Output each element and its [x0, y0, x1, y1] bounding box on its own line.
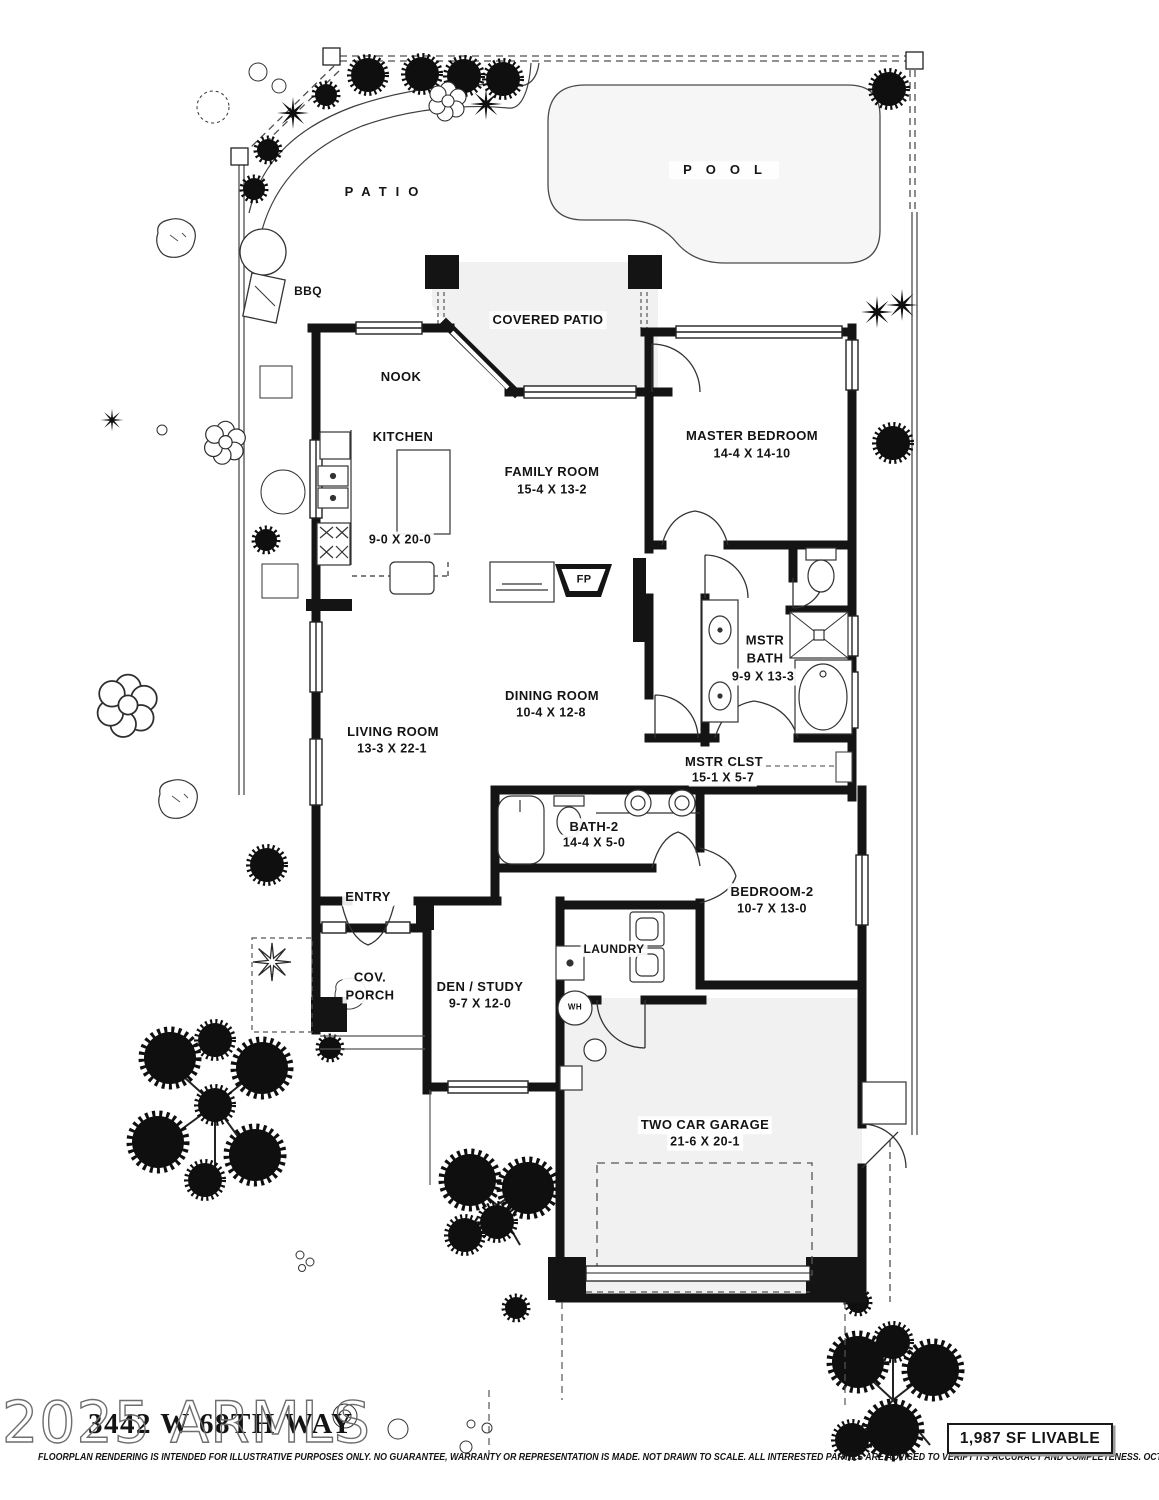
master-closet-label: MSTR CLST	[682, 753, 766, 771]
master-closet-dims: 15-1 X 5-7	[689, 770, 757, 787]
softener	[584, 1039, 606, 1061]
dining-room-label: DINING ROOM	[502, 687, 602, 705]
utility-box	[560, 1066, 582, 1090]
palm-icon	[886, 289, 918, 321]
kitchen-island	[397, 450, 450, 534]
kitchen-fixtures	[317, 430, 450, 594]
bedroom2-label: BEDROOM-2	[727, 883, 816, 901]
bath2-dims: 14-4 X 5-0	[560, 835, 628, 852]
toilet-bowl	[808, 560, 834, 592]
bbq-grill	[240, 229, 286, 323]
family-room-label: FAMILY ROOM	[502, 463, 603, 481]
planter-box	[260, 366, 292, 398]
tree-icon	[130, 1022, 290, 1198]
bush-icon	[318, 1036, 342, 1060]
patio-table	[261, 470, 305, 514]
den-study-label: DEN / STUDY	[434, 978, 527, 996]
living-room-label: LIVING ROOM	[344, 723, 442, 741]
cabinet	[390, 562, 434, 594]
stone-icon	[157, 425, 167, 435]
armls-watermark: 2025 ARMLS	[2, 1390, 371, 1456]
laundry-label: LAUNDRY	[580, 941, 647, 957]
bush-icon	[256, 138, 280, 162]
bedroom2-dims: 10-7 X 13-0	[734, 901, 810, 918]
master-double-door	[662, 511, 728, 545]
tub	[498, 796, 544, 864]
stone-icon	[272, 79, 286, 93]
bush-icon	[249, 847, 285, 883]
bush-icon	[875, 425, 911, 461]
master-bath-dims: 9-9 X 13-3	[729, 669, 797, 686]
kitchen-label: KITCHEN	[370, 428, 437, 446]
bbq-label: BBQ	[291, 283, 325, 299]
palm-icon	[861, 296, 893, 328]
floorplan-page: POOL PATIO COVERED PATIO BBQ NOOK KITCHE…	[0, 0, 1159, 1500]
toilet-tank	[554, 796, 584, 806]
floorplan-drawing	[0, 0, 1159, 1500]
garage-label: TWO CAR GARAGE	[638, 1116, 772, 1134]
stone-icon	[197, 91, 229, 123]
fridge	[320, 432, 350, 459]
living-room-dims: 13-3 X 22-1	[354, 741, 430, 758]
covered-patio-label: COVERED PATIO	[490, 311, 607, 329]
tree-icon	[830, 1324, 961, 1458]
family-room-dims: 15-4 X 13-2	[514, 482, 590, 499]
kitchen-dims: 9-0 X 20-0	[366, 532, 434, 549]
flower-cluster	[98, 675, 157, 737]
bush-icon	[314, 83, 338, 107]
toilet-tank	[806, 548, 836, 560]
cov-porch-label: COV. PORCH	[343, 968, 398, 1003]
den-study-dims: 9-7 X 12-0	[446, 996, 514, 1013]
stone-icon	[249, 63, 267, 81]
palm-icon	[470, 88, 502, 120]
dining-room-dims: 10-4 X 12-8	[513, 705, 589, 722]
palm-icon	[277, 97, 309, 129]
tree-icon	[485, 61, 521, 97]
tree-icon	[442, 1152, 556, 1253]
water-heater-label: WH	[567, 1003, 583, 1014]
pool-label: POOL	[669, 161, 779, 179]
bath2-label: BATH-2	[566, 818, 621, 836]
bush-icon	[504, 1296, 528, 1320]
planter-box	[262, 564, 298, 598]
bush-icon	[242, 177, 266, 201]
master-bedroom-dims: 14-4 X 14-10	[710, 446, 793, 463]
patio-door	[652, 344, 700, 392]
nook-label: NOOK	[378, 368, 425, 386]
fireplace-label: FP	[574, 573, 595, 588]
rock-icon	[159, 780, 198, 819]
palm-icon	[101, 409, 123, 431]
master-bath-label: MSTR BATH	[743, 631, 787, 666]
master-bath-door	[705, 555, 748, 598]
hall-door	[655, 695, 698, 738]
livable-area-badge: 1,987 SF LIVABLE	[947, 1423, 1113, 1454]
garage-dims: 21-6 X 20-1	[667, 1134, 743, 1151]
entry-label: ENTRY	[342, 888, 394, 906]
side-stoop	[862, 1082, 906, 1124]
master-bedroom-label: MASTER BEDROOM	[683, 427, 821, 445]
bush-icon	[254, 528, 278, 552]
bath2-door	[652, 832, 700, 868]
patio-label: PATIO	[336, 183, 431, 201]
garage-side-door	[862, 1124, 906, 1168]
palm-icon	[253, 943, 291, 981]
tree-icon	[350, 57, 386, 93]
rock-icon	[157, 219, 196, 258]
